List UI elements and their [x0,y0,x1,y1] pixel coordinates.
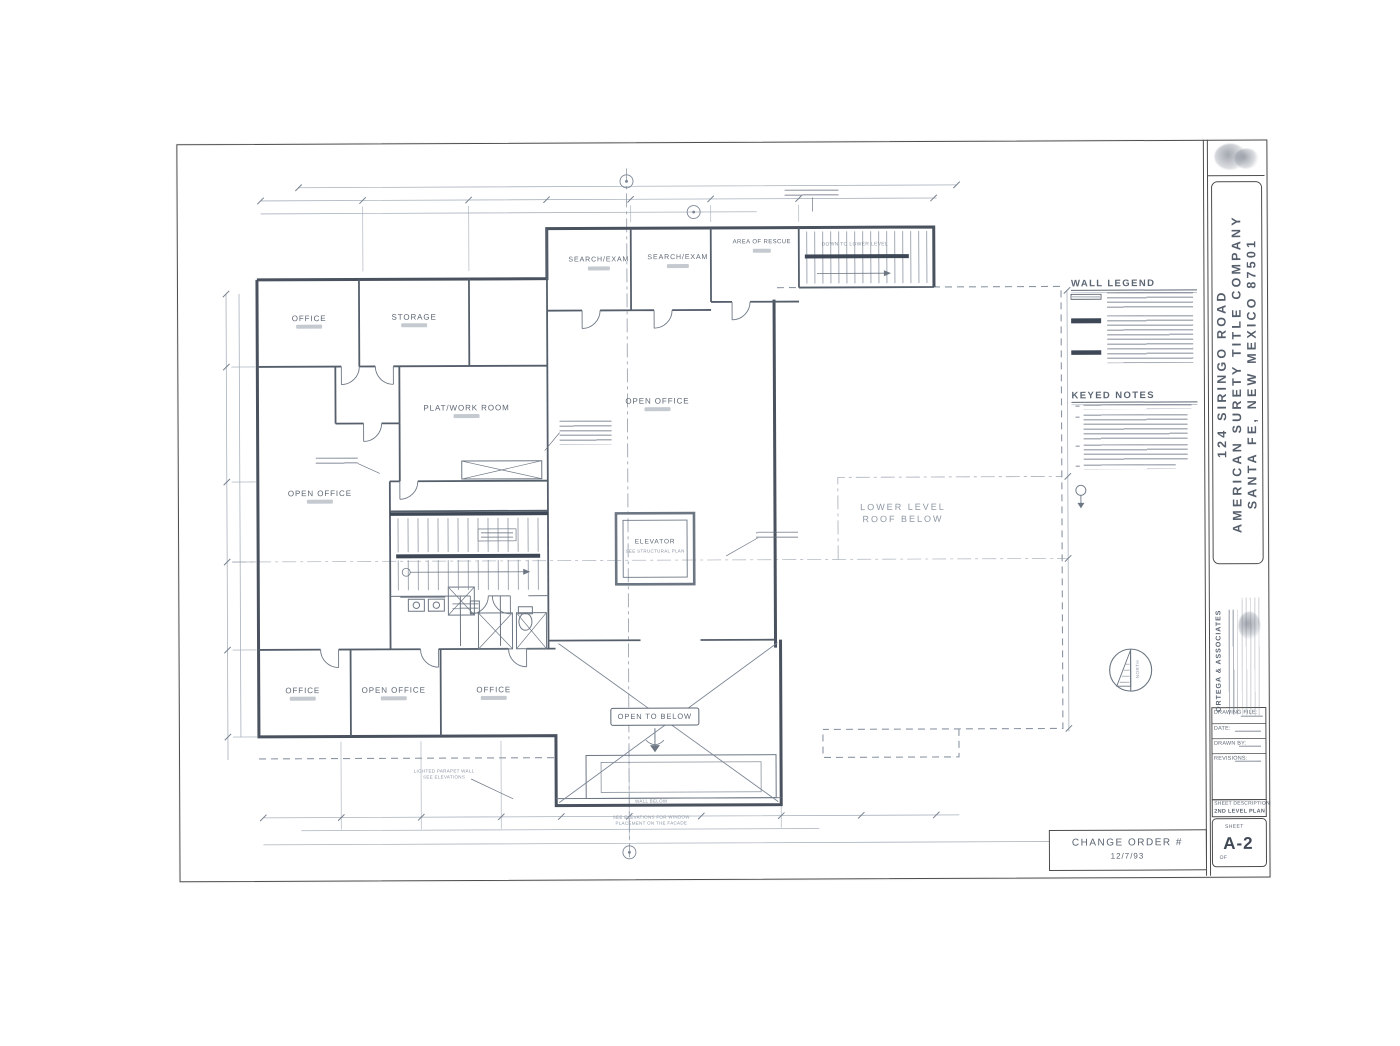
room-number-illegible [307,500,333,504]
window-placement-note-2: PLACEMENT ON THE FACADE [615,820,687,825]
architect-stamp-logo [1234,149,1258,169]
north-arrow [1110,649,1152,691]
keyed-note-number-illegible [1076,416,1080,420]
project-title-block: 124 SIRINGO ROAD AMERICAN SURETY TITLE C… [1214,214,1260,533]
of-word: OF [1220,856,1228,862]
wall-legend-title: WALL LEGEND [1071,278,1155,289]
keyed-notes-title: KEYED NOTES [1071,390,1155,401]
room-label-open-office-bottom: OPEN OFFICE [362,686,426,695]
stair-label-down-to-lower: DOWN TO LOWER LEVEL [822,242,888,248]
stair-tag-illegible [481,532,513,538]
keyed-note-number-illegible [1076,445,1080,449]
north-arrow-label: NORTH [1135,660,1140,678]
window-placement-note-1: SEE ELEVATIONS FOR WINDOW [613,814,690,820]
open-to-below-label: OPEN TO BELOW [618,712,692,721]
parapet-note-1: LIGHTED PARAPET WALL [414,768,475,773]
room-label-search-exam-1: SEARCH/EXAM [568,256,629,264]
overhang-note-illegible [785,189,839,198]
legend-entry-text-illegible [1107,292,1193,308]
field-value-illegible [1235,761,1261,764]
sheet-description-label: SHEET DESCRIPTION: [1214,802,1271,808]
field-value-illegible [1239,746,1261,749]
room-label-open-office-center: OPEN OFFICE [625,396,689,405]
change-order-title: CHANGE ORDER # [1072,837,1183,849]
change-order-box [1049,830,1206,871]
open-to-below-atrium [559,643,779,803]
center-stair [390,512,548,591]
project-company: AMERICAN SURETY TITLE COMPANY [1229,214,1245,533]
interior-walls [257,227,936,737]
room-label-area-of-rescue: AREA OF RESCUE [733,239,791,246]
stamp-smudge [1238,612,1260,640]
parapet-note-2: SEE ELEVATIONS [423,774,465,779]
elevator-sub-note: SEE STRUCTURAL PLAN [626,548,685,553]
room-label-platwork: PLAT/WORK ROOM [423,403,509,413]
room-number-illegible [296,325,322,329]
wall-below-note: WALL BELOW [635,799,667,804]
room-number-illegible [401,323,427,327]
room-number-illegible [753,249,771,253]
room-number-illegible [588,266,610,270]
roof-below-label-2: ROOF BELOW [862,514,943,525]
keyed-note-number-illegible [1076,465,1080,469]
keyed-note-text-illegible [1084,414,1188,440]
grid-bubbles [620,174,703,858]
sheet-number: A-2 [1223,834,1253,854]
sheet-word: SHEET [1225,825,1244,831]
field-value-illegible [1241,716,1263,719]
field-date: DATE: [1214,726,1231,732]
keyed-note-number-illegible [1075,405,1079,409]
room-number-illegible [381,696,407,700]
upper-right-stair [805,231,927,284]
change-order-date: 12/7/93 [1111,851,1145,860]
room-label-office-tl: OFFICE [292,314,327,323]
room-label-office-bl: OFFICE [285,686,320,695]
room-number-illegible [290,697,316,701]
legend-entry-text-illegible [1107,348,1193,363]
plan-linework [0,0,1400,1046]
legend-entry-text-illegible [1107,315,1193,348]
roof-below-label-1: LOWER LEVEL [860,502,946,513]
keyed-note-text-illegible [1084,444,1188,460]
room-number-illegible [645,407,671,411]
fire-extinguisher-note-illegible [316,457,358,466]
room-label-open-office-left: OPEN OFFICE [288,489,352,498]
room-label-elevator: ELEVATOR [635,538,676,546]
project-address: 124 SIRINGO ROAD [1214,214,1230,533]
architect-info-illegible [1228,610,1237,715]
room-label-storage: STORAGE [391,313,436,322]
wall-leader-note-illegible [756,532,798,541]
keyed-note-text-illegible [1084,464,1176,469]
keyed-note-text-illegible [1083,404,1191,409]
room-number-illegible [667,264,689,268]
mech-chase-note-illegible [560,420,612,444]
thin-linework [357,198,816,800]
room-number-illegible [481,696,507,700]
scanned-drawing-page: OFFICE STORAGE PLAT/WORK ROOM OPEN OFFIC… [0,0,1400,1046]
sheet-description-value: 2ND LEVEL PLAN [1214,809,1265,816]
project-city: SANTA FE, NEW MEXICO 87501 [1244,214,1260,533]
room-label-office-bm: OFFICE [476,685,511,694]
architect-name: ORTEGA & ASSOCIATES [1215,610,1223,712]
room-number-illegible [454,414,480,418]
field-value-illegible [1235,731,1261,734]
room-label-search-exam-2: SEARCH/EXAM [647,254,708,262]
restroom-note-illegible [452,603,478,609]
